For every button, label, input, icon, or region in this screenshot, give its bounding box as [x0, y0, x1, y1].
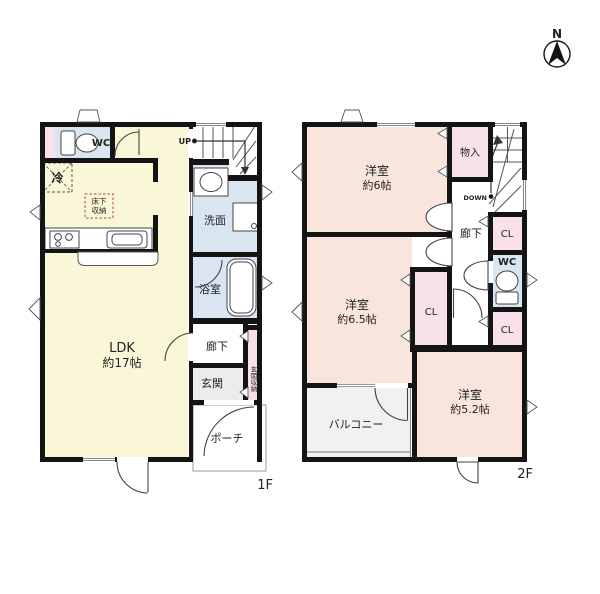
label-room65: 洋室: [345, 297, 369, 312]
room65-door-arc: [426, 238, 452, 266]
label-up: UP: [179, 137, 191, 146]
floor-2f-plan: 洋室 約6帖 物入 廊下 CL WC CL CL 洋室 約6.5帖 洋室 約5.…: [292, 110, 537, 483]
label-wc-1f: WC: [92, 138, 110, 149]
label-room65-size: 約6.5帖: [337, 312, 377, 326]
underfloor-label-2: 収納: [92, 205, 107, 215]
compass-label: N: [552, 27, 562, 41]
label-ldk: LDK: [109, 341, 135, 356]
window-mark-right-2: [262, 276, 272, 290]
floorplan-page: 冷 床下 収納: [0, 0, 600, 594]
label-entrance-storage: 玄関収納: [249, 365, 257, 394]
balcony-window: [337, 383, 375, 388]
closet-door-mark-3: [479, 216, 488, 227]
label-floor2: 2F: [517, 467, 533, 482]
counter-front: [78, 252, 158, 266]
window-bottom-1f: [83, 457, 115, 462]
underfloor-label-1: 床下: [92, 196, 107, 206]
window-mark-left-1: [30, 205, 40, 220]
label-porch: ポーチ: [211, 432, 244, 445]
label-room52: 洋室: [458, 387, 482, 402]
toilet-icon-2f: [496, 271, 518, 304]
window-mark-left-4: [292, 302, 302, 321]
label-room6: 洋室: [365, 163, 389, 178]
window-mark-right-4: [527, 400, 537, 414]
label-bathroom: 浴室: [199, 282, 221, 296]
label-storage-2f: 物入: [460, 146, 480, 159]
bay-vent-top-2f: [341, 110, 363, 122]
label-room52-size: 約5.2帖: [450, 402, 490, 416]
floor-1f-plan: 冷 床下 収納: [29, 110, 273, 493]
terrace-door-arc: [117, 462, 148, 493]
exterior-door-mark: [457, 462, 478, 483]
sink-icon: [107, 231, 147, 248]
room52-door-arc: [453, 289, 482, 318]
fridge-label: 冷: [51, 170, 63, 185]
bay-vent-top-1f: [77, 110, 100, 122]
stove-icon: [50, 231, 79, 248]
compass: N: [544, 27, 570, 67]
window-top-1f: [196, 122, 226, 127]
label-balcony: バルコニー: [329, 418, 384, 431]
label-entrance: 玄関: [201, 376, 223, 390]
north-arrow-icon: [548, 41, 566, 65]
window-mark-right-1: [262, 185, 272, 200]
bathtub-icon: [227, 259, 256, 316]
wc-door-arc-2f: [464, 261, 488, 290]
washbasin-icon: [194, 168, 228, 196]
washing-machine-icon: [233, 203, 260, 231]
label-hallway-2f: 廊下: [460, 226, 482, 240]
label-cl-top: CL: [501, 229, 514, 240]
wc-shelf-strip: [45, 127, 55, 158]
label-wc-2f: WC: [498, 257, 516, 268]
label-room6-size: 約6帖: [363, 178, 392, 192]
floorplan-canvas: 冷 床下 収納: [0, 0, 600, 594]
window-mark-left-2: [29, 298, 40, 320]
label-down: DOWN: [463, 194, 487, 202]
window-mark-left-3: [292, 163, 302, 181]
label-ldk-size: 約17帖: [102, 355, 141, 370]
room-ldk: [45, 127, 188, 457]
window-mark-right-3: [527, 273, 537, 287]
label-hallway-1f: 廊下: [206, 339, 228, 353]
closet-door-mark-4: [479, 316, 488, 327]
label-washroom: 洗面: [204, 214, 226, 227]
label-cl-mid: CL: [425, 307, 438, 318]
label-cl-bottom: CL: [501, 325, 514, 336]
label-floor1: 1F: [257, 478, 273, 493]
